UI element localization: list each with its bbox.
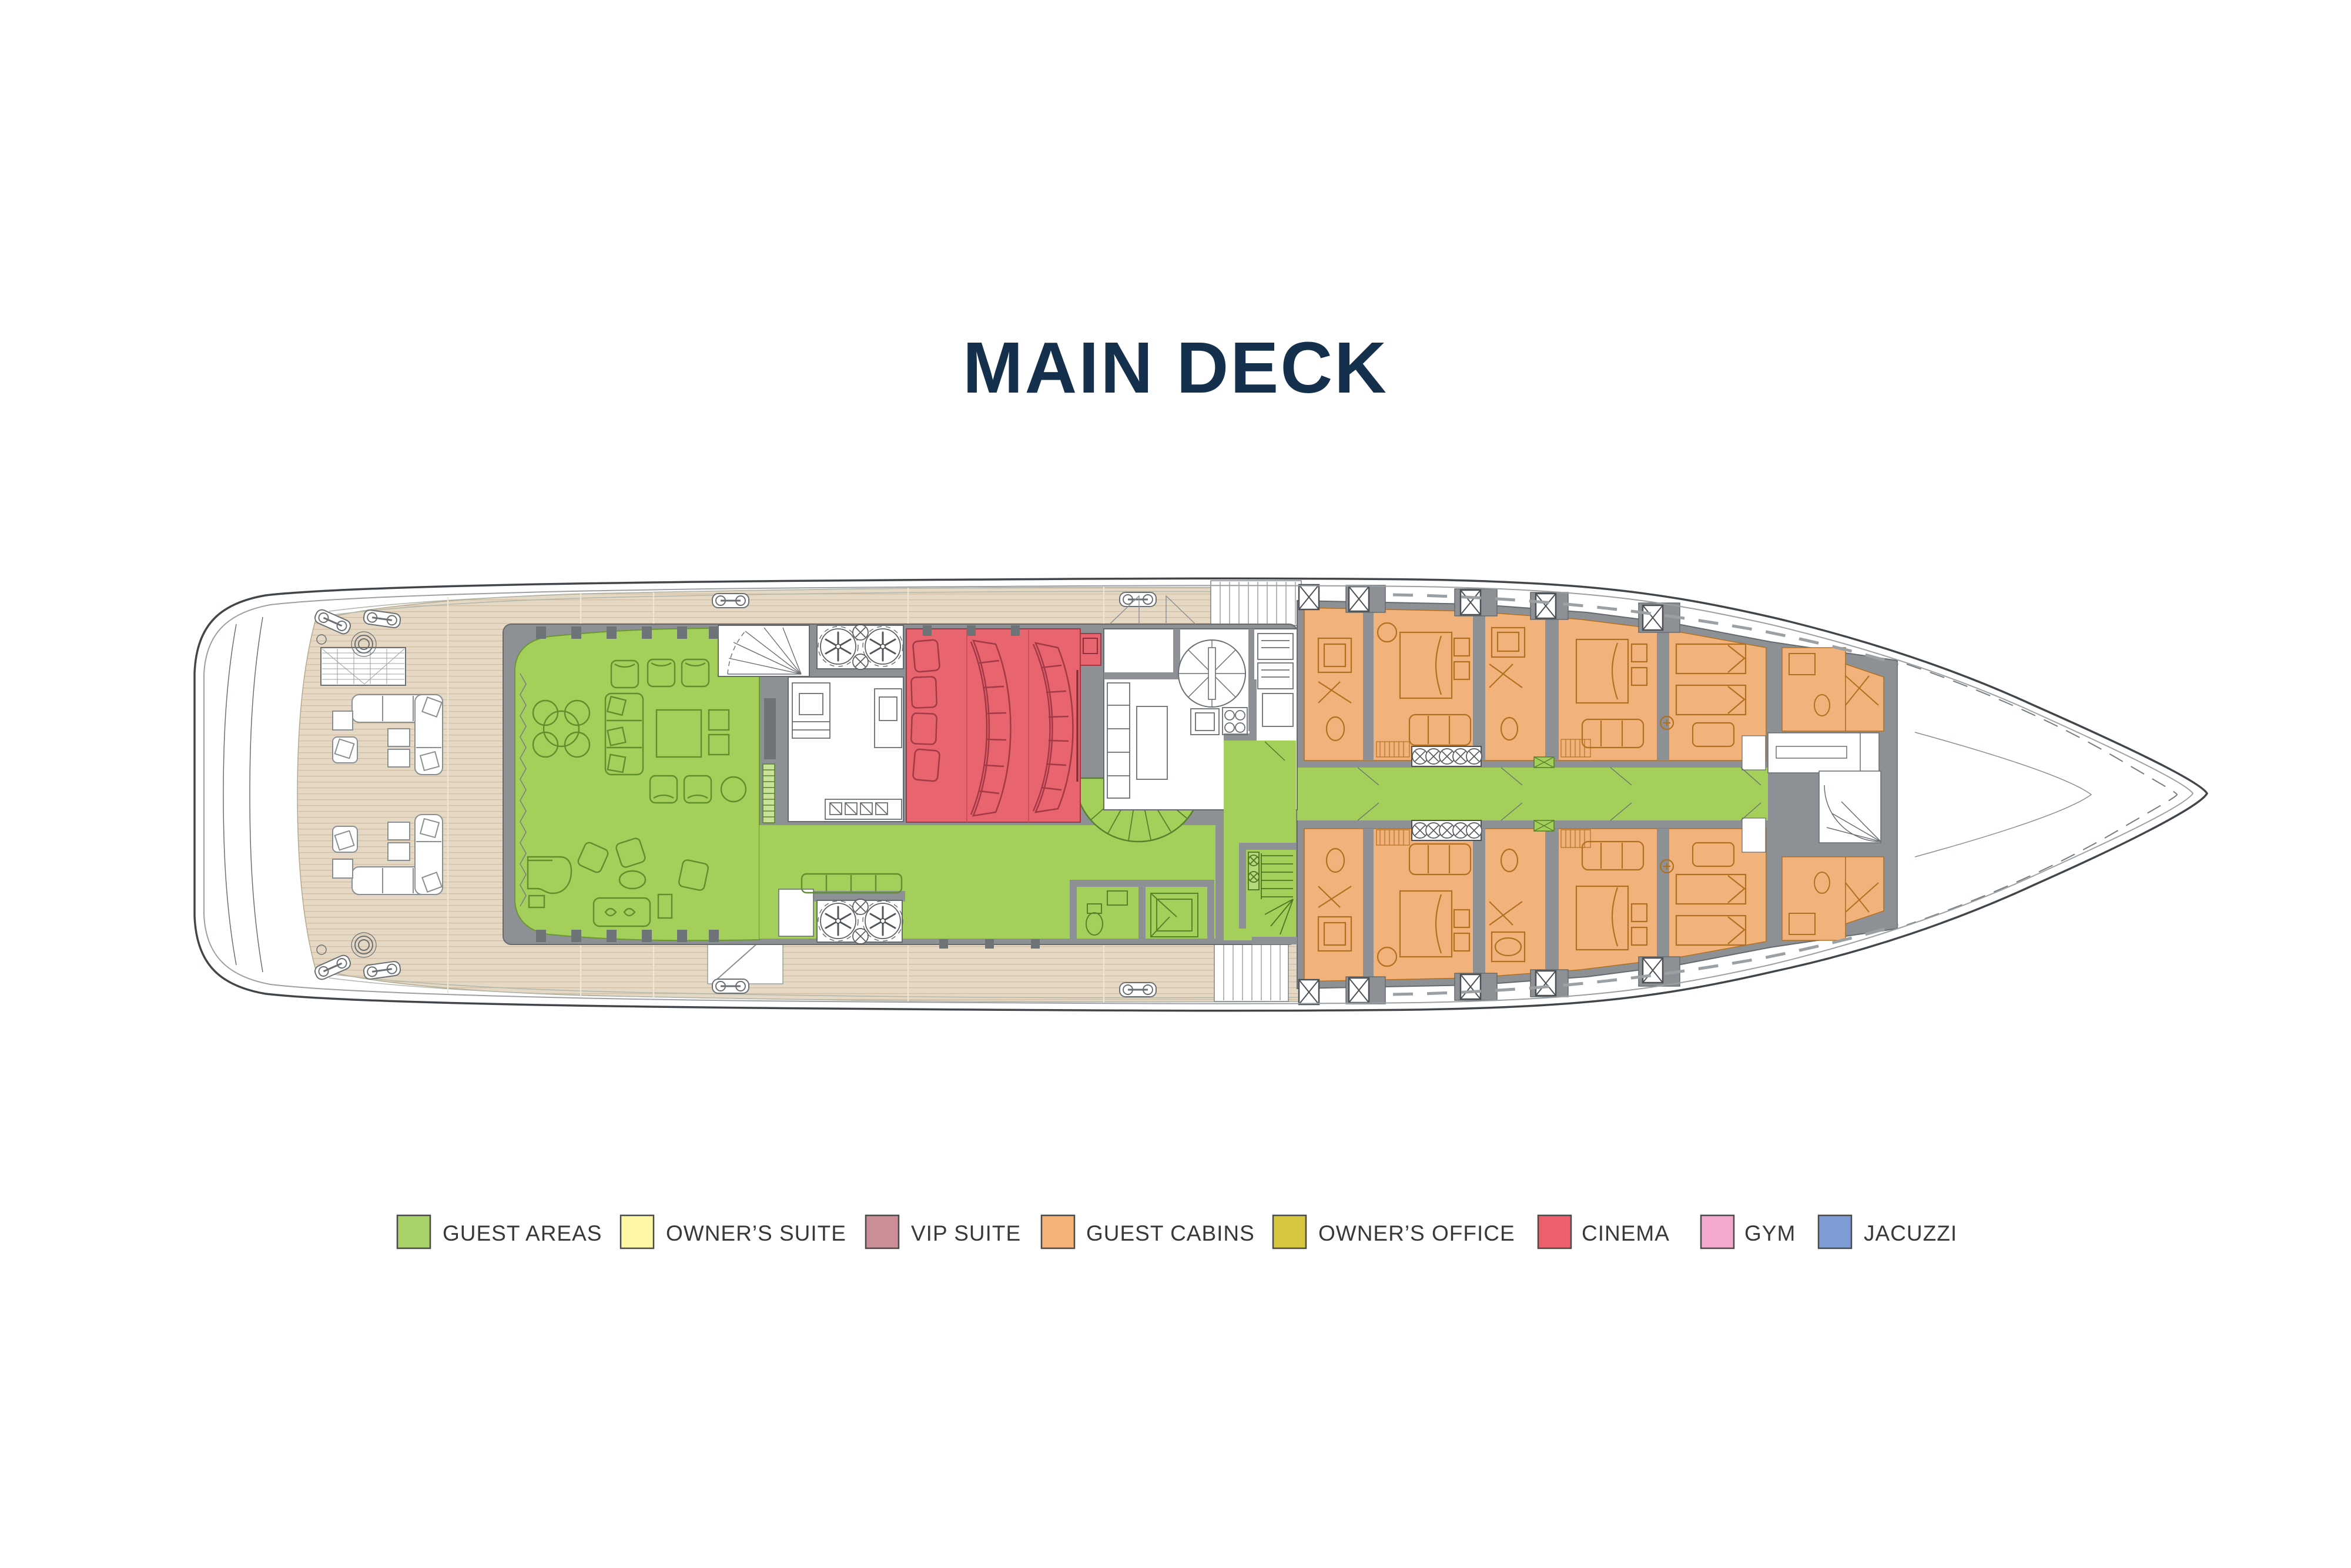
svg-text:GUEST AREAS: GUEST AREAS <box>443 1221 602 1245</box>
svg-text:OWNER’S OFFICE: OWNER’S OFFICE <box>1318 1221 1515 1245</box>
svg-text:JACUZZI: JACUZZI <box>1864 1221 1957 1245</box>
svg-text:OWNER’S SUITE: OWNER’S SUITE <box>666 1221 846 1245</box>
svg-text:CINEMA: CINEMA <box>1582 1221 1670 1245</box>
svg-text:GUEST CABINS: GUEST CABINS <box>1086 1221 1255 1245</box>
svg-text:MAIN DECK: MAIN DECK <box>963 328 1388 408</box>
svg-text:GYM: GYM <box>1744 1221 1796 1245</box>
svg-text:VIP SUITE: VIP SUITE <box>911 1221 1021 1245</box>
